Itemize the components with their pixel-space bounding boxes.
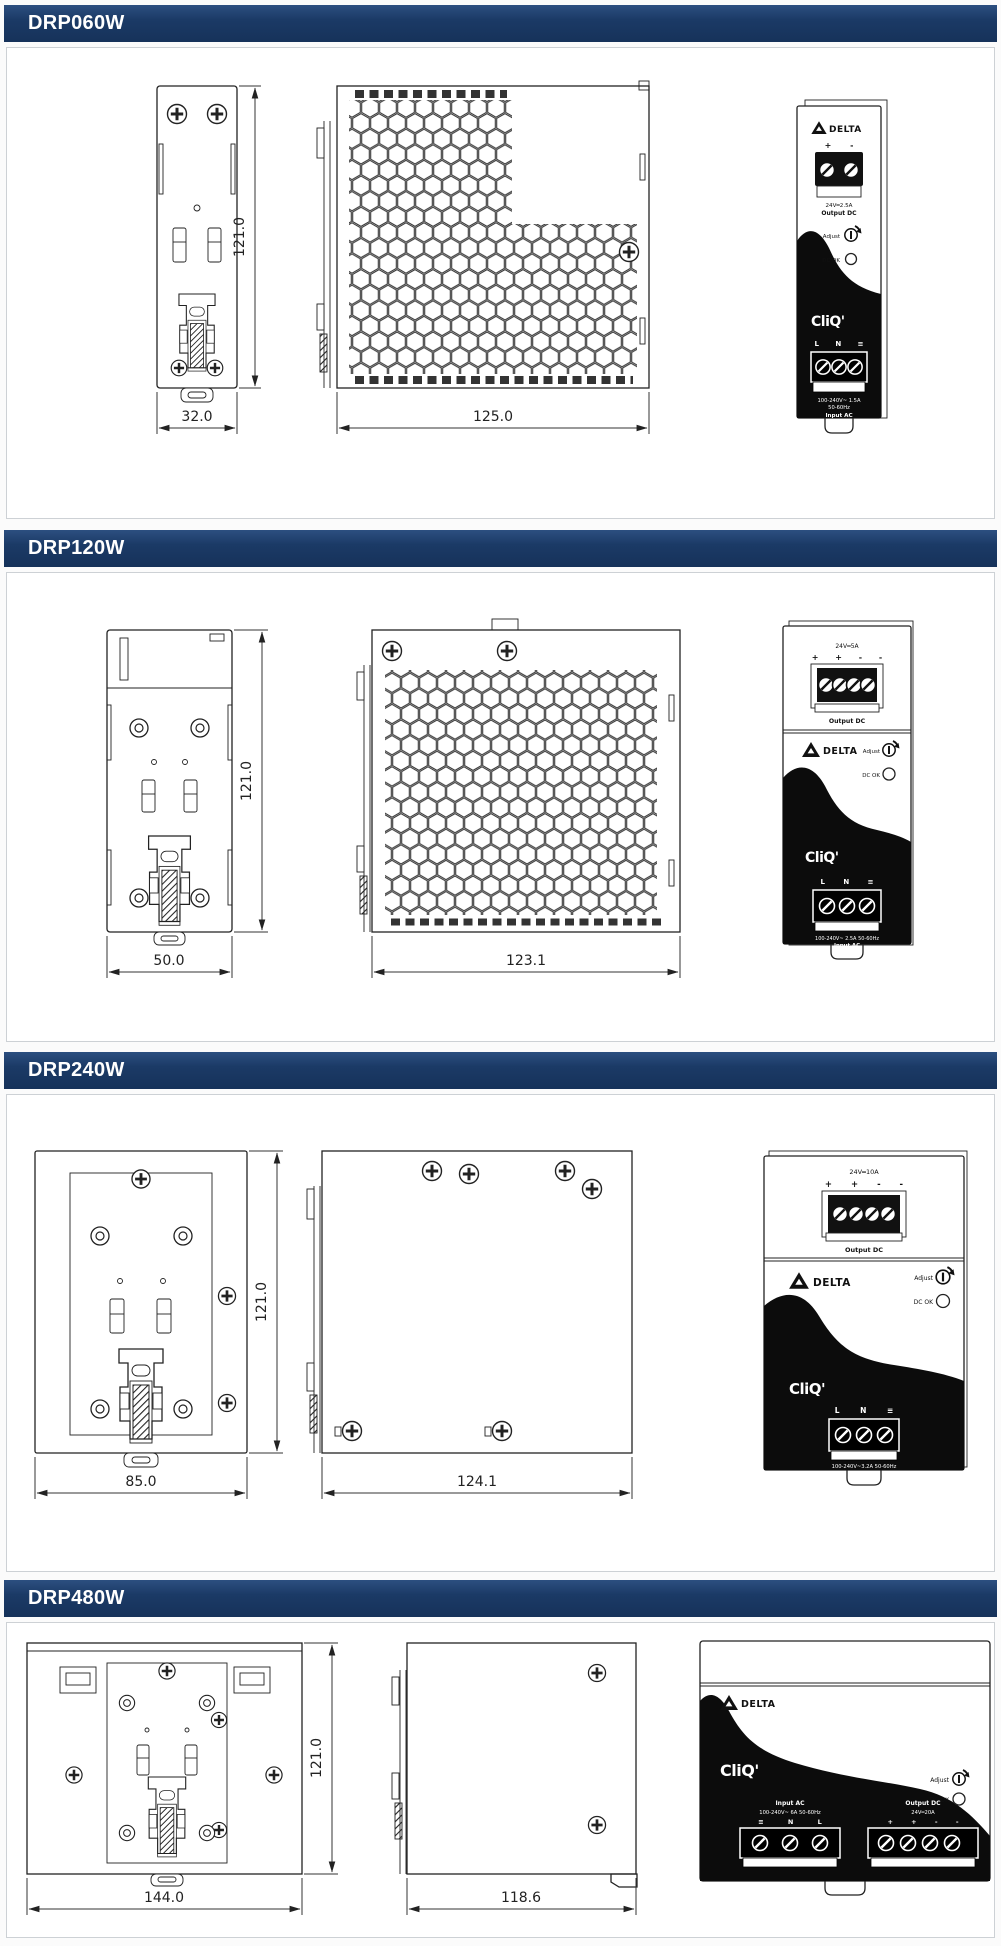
cliq-logo: CliQ' bbox=[789, 1380, 825, 1398]
input-polarity-label: ≡ N L bbox=[758, 1818, 822, 1826]
dim-width-label: 85.0 bbox=[125, 1474, 156, 1490]
output-polarity-label: + + - - bbox=[825, 1180, 904, 1190]
input-polarity-label: L N ≡ bbox=[820, 878, 873, 886]
input-terminal-block bbox=[811, 352, 867, 392]
section-panel-drp240w: 121.0 85.0 124.1 24V═10A + + - - bbox=[6, 1094, 995, 1572]
output-terminal-block bbox=[811, 664, 883, 712]
section-header-drp240w: DRP240W bbox=[4, 1052, 997, 1089]
drp120w-front-view: 24V═5A + + - - Output DC DELTA Adjust DC… bbox=[777, 610, 917, 1030]
dim-height-label: 121.0 bbox=[239, 761, 255, 801]
drp120w-side-view: 123.1 bbox=[347, 610, 687, 1010]
front-brand: DELTA bbox=[823, 746, 858, 757]
input-terminal-block bbox=[813, 890, 881, 931]
output-rating-label: 24V═10A bbox=[849, 1168, 879, 1176]
drp240w-rear-view: 121.0 85.0 bbox=[15, 1131, 315, 1531]
front-brand: DELTA bbox=[829, 125, 862, 135]
input-ac-label: Input AC bbox=[825, 413, 852, 419]
output-terminal-block bbox=[822, 1191, 906, 1241]
dim-depth-label: 125.0 bbox=[473, 409, 513, 425]
section-panel-drp480w: 121.0 144.0 118.6 DELTA CliQ' Adjust DC … bbox=[6, 1622, 995, 1938]
drp480w-side-view: 118.6 bbox=[379, 1625, 659, 1925]
output-terminal-block bbox=[815, 152, 863, 197]
input-terminal-block bbox=[740, 1828, 840, 1867]
dim-depth-label: 123.1 bbox=[506, 953, 546, 969]
input-terminal-block bbox=[829, 1419, 899, 1460]
input-ac-label: Input AC bbox=[834, 943, 860, 949]
input-ac-label: Input AC bbox=[775, 1800, 805, 1807]
drp480w-front-view: DELTA CliQ' Adjust DC OK Input AC 100-24… bbox=[695, 1631, 995, 1901]
input-polarity-label: L N ≡ bbox=[814, 340, 863, 348]
input-rating-label: 100-240V~3.2A 50-60Hz bbox=[832, 1464, 897, 1470]
dc-ok-label: DC OK bbox=[862, 773, 880, 779]
drp240w-side-view: 124.1 bbox=[297, 1131, 637, 1531]
din-tab bbox=[825, 1881, 865, 1895]
input-freq-label: 50-60Hz bbox=[828, 405, 850, 411]
dim-depth-label: 118.6 bbox=[501, 1890, 541, 1906]
output-rating-label: 24V═2.5A bbox=[825, 203, 852, 209]
dim-height-label: 121.0 bbox=[232, 217, 248, 257]
front-brand: DELTA bbox=[813, 1277, 851, 1289]
output-dc-label: Output DC bbox=[845, 1246, 883, 1254]
output-dc-label: Output DC bbox=[829, 718, 866, 725]
output-polarity-label: + + - - bbox=[887, 1818, 958, 1826]
drp060w-rear-view: 121.0 32.0 bbox=[127, 66, 287, 466]
section-header-drp120w: DRP120W bbox=[4, 530, 997, 567]
section-panel-drp120w: 121.0 50.0 123.1 24V═5A + + - - bbox=[6, 572, 995, 1042]
drp240w-front-view: 24V═10A + + - - Output DC DELTA Adjust D… bbox=[759, 1141, 969, 1561]
cliq-logo: CliQ' bbox=[805, 850, 839, 866]
input-polarity-label: L N ≡ bbox=[835, 1406, 894, 1415]
input-rating-label: 100-240V~ 1.5A bbox=[817, 398, 860, 404]
adjust-label: Adjust bbox=[823, 234, 841, 240]
output-polarity-label: + + - - bbox=[812, 653, 882, 662]
dim-height-label: 121.0 bbox=[254, 1282, 270, 1322]
output-polarity-label: + - bbox=[825, 141, 854, 150]
output-terminal-block bbox=[868, 1828, 978, 1867]
section-panel-drp060w: 121.0 32.0 125.0 DELTA + - bbox=[6, 47, 995, 519]
datasheet-page: DRP060W 121.0 32.0 12 bbox=[0, 0, 1001, 1946]
output-dc-label: Output DC bbox=[821, 210, 857, 217]
drp060w-side-view: 125.0 bbox=[307, 66, 667, 466]
din-tab bbox=[825, 418, 853, 433]
cliq-logo: CliQ' bbox=[720, 1761, 759, 1780]
foot-tab bbox=[611, 1874, 637, 1887]
front-brand: DELTA bbox=[741, 1699, 776, 1710]
dc-ok-label: DC OK bbox=[822, 258, 840, 264]
dim-width-label: 32.0 bbox=[181, 409, 212, 425]
adjust-label: Adjust bbox=[863, 749, 881, 755]
adjust-label: Adjust bbox=[914, 1275, 933, 1282]
dim-width-label: 144.0 bbox=[144, 1890, 184, 1906]
input-rating-label: 100-240V~ 6A 50-60Hz bbox=[759, 1810, 821, 1816]
cliq-logo: CliQ' bbox=[811, 314, 845, 330]
output-rating-label: 24V═5A bbox=[835, 643, 859, 650]
drp120w-rear-view: 121.0 50.0 bbox=[82, 610, 302, 1010]
output-dc-label: Output DC bbox=[905, 1800, 941, 1807]
dim-height-label: 121.0 bbox=[309, 1738, 325, 1778]
drp060w-front-view: DELTA + - 24V═2.5A Output DC Adjust DC O… bbox=[789, 86, 899, 506]
adjust-label: Adjust bbox=[930, 1777, 949, 1784]
input-rating-label: 100-240V~ 2.5A 50-60Hz bbox=[815, 936, 879, 942]
dc-ok-label: DC OK bbox=[914, 1299, 934, 1306]
section-header-drp060w: DRP060W bbox=[4, 5, 997, 42]
input-ac-label: Input AC bbox=[851, 1471, 877, 1477]
dim-width-label: 50.0 bbox=[153, 953, 184, 969]
section-header-drp480w: DRP480W bbox=[4, 1580, 997, 1617]
output-rating-label: 24V═20A bbox=[911, 1810, 935, 1816]
drp480w-rear-view: 121.0 144.0 bbox=[12, 1625, 342, 1925]
dim-depth-label: 124.1 bbox=[457, 1474, 497, 1490]
